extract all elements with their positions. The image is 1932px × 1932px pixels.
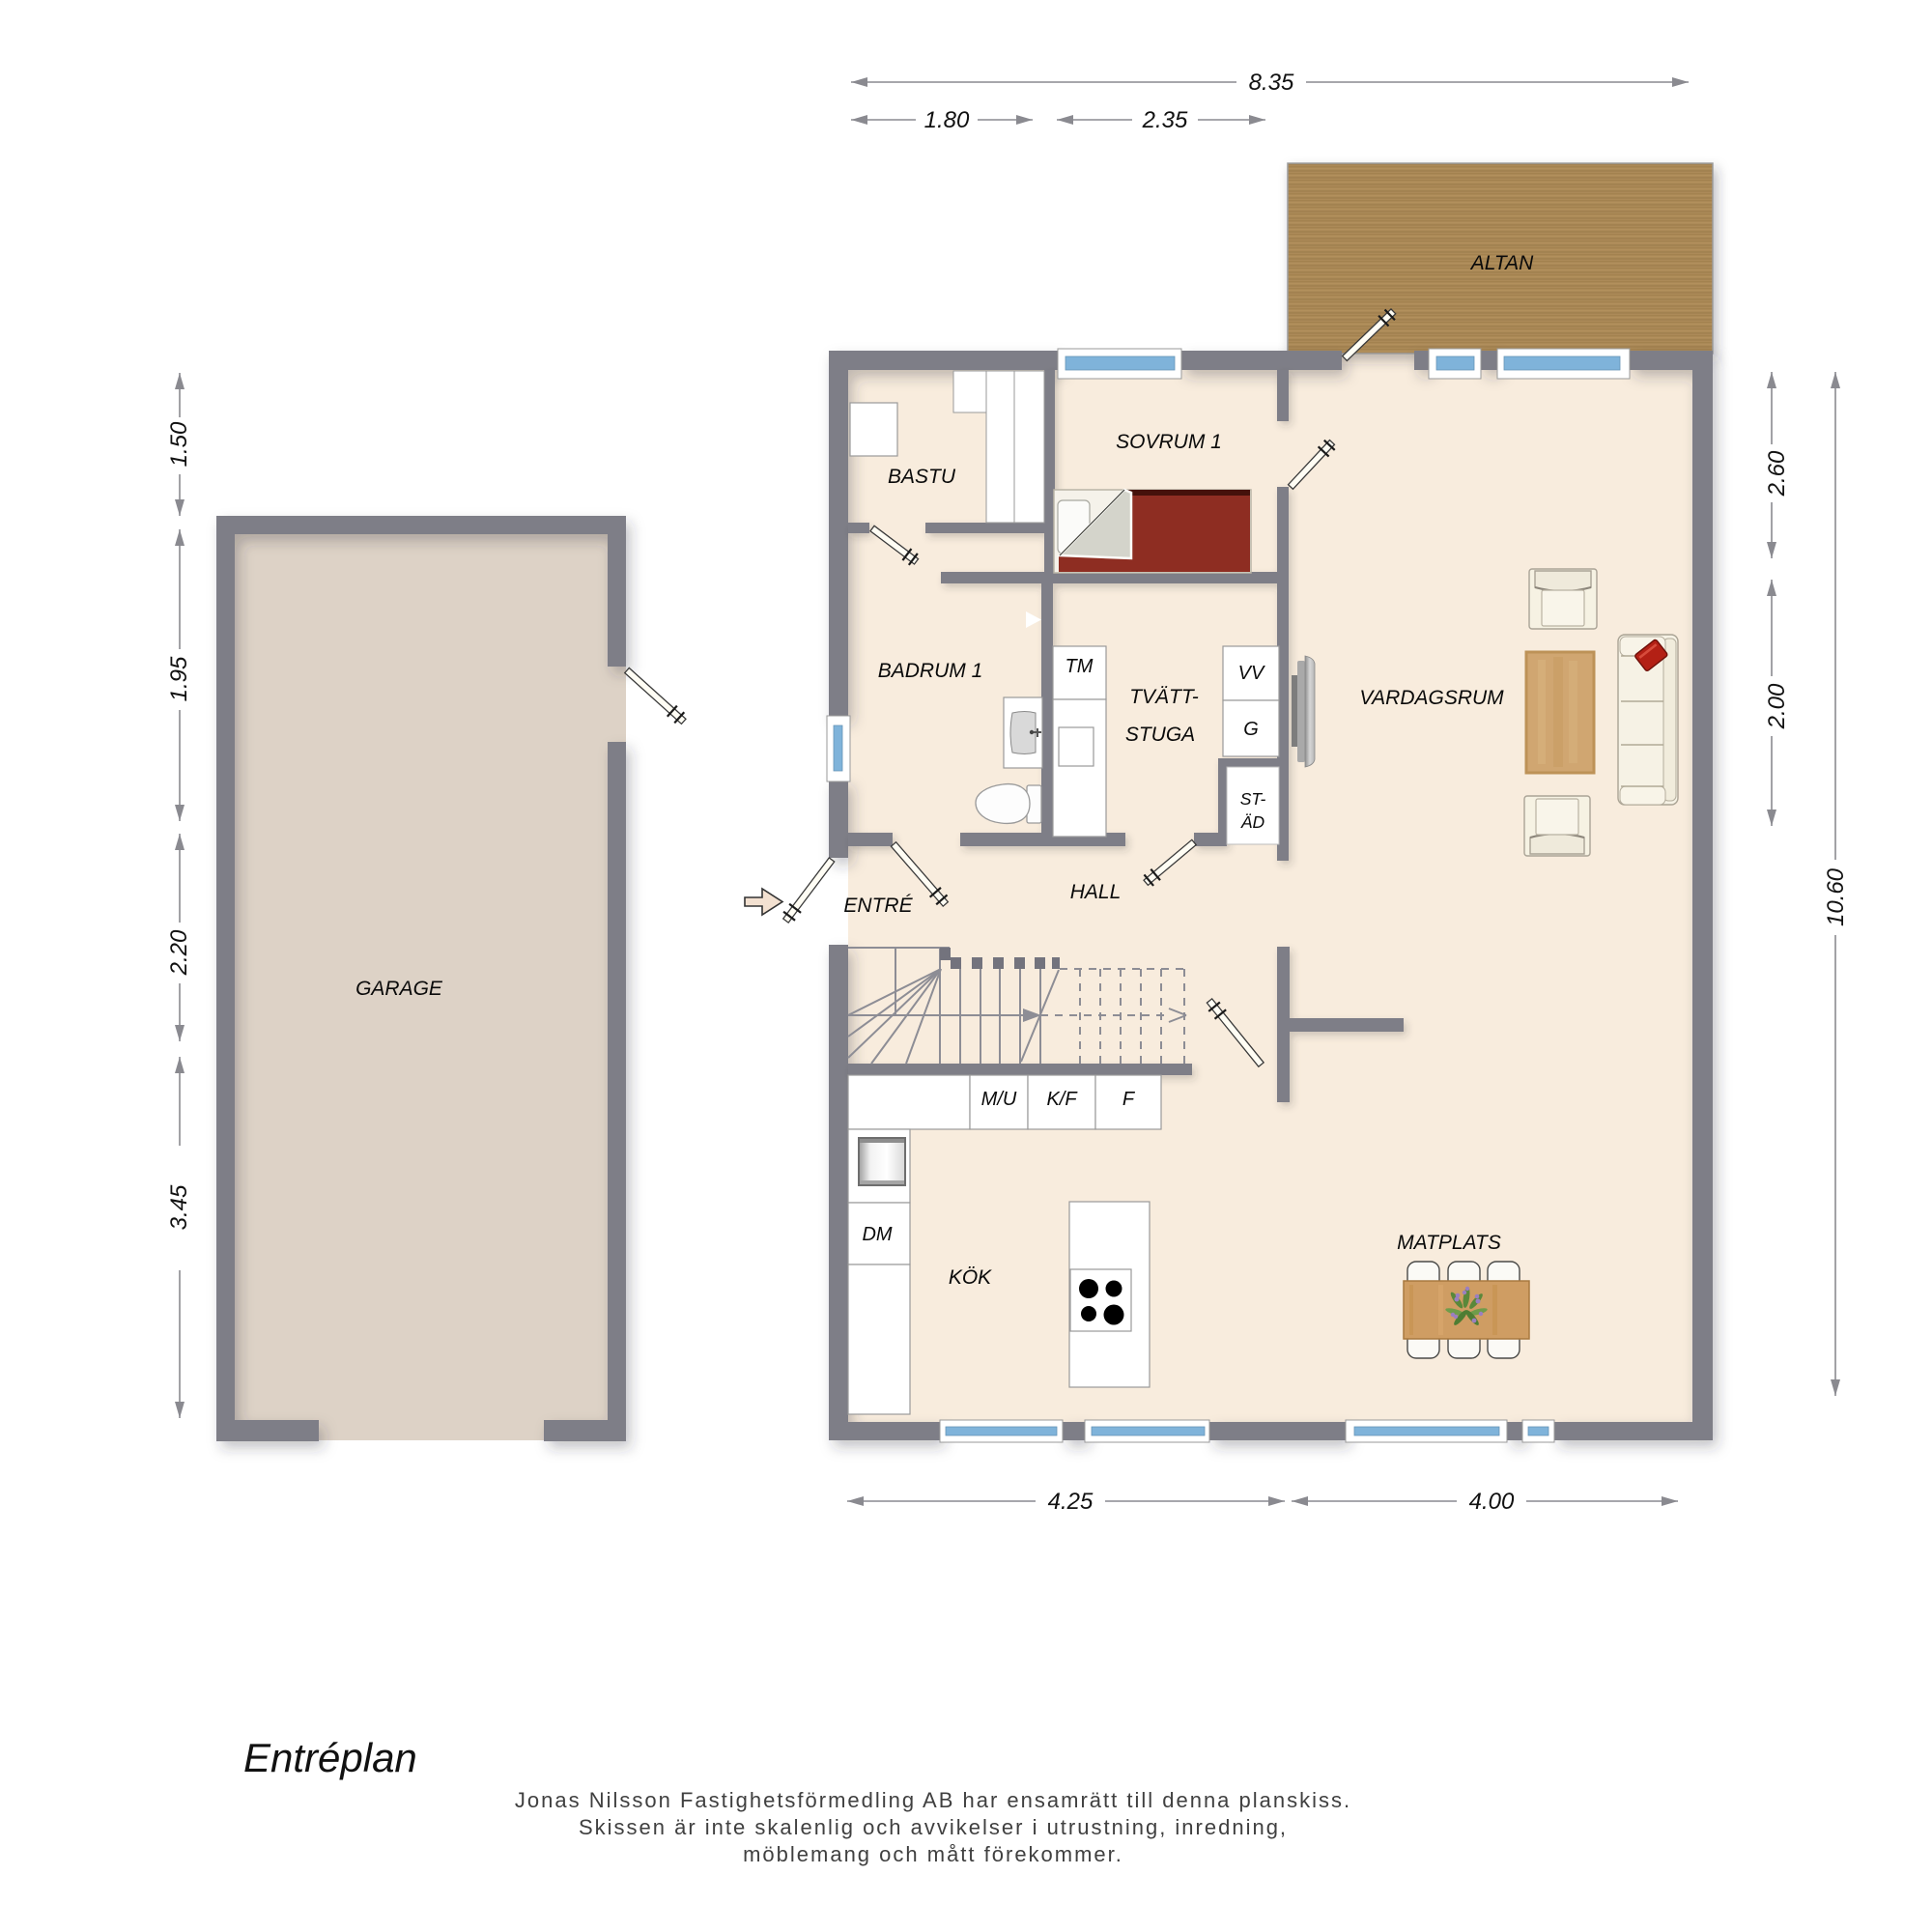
svg-text:2.20: 2.20 <box>166 929 192 976</box>
svg-text:2.35: 2.35 <box>1142 107 1188 133</box>
svg-text:Skissen är inte skalenlig och: Skissen är inte skalenlig och avvikelser… <box>579 1815 1288 1839</box>
svg-text:DM: DM <box>862 1224 892 1245</box>
svg-text:3.45: 3.45 <box>166 1184 192 1230</box>
svg-text:4.00: 4.00 <box>1469 1489 1515 1515</box>
svg-text:F: F <box>1122 1089 1136 1110</box>
svg-text:1.95: 1.95 <box>166 656 192 701</box>
svg-text:1.50: 1.50 <box>166 421 192 467</box>
svg-text:8.35: 8.35 <box>1249 70 1294 96</box>
svg-text:4.25: 4.25 <box>1048 1489 1094 1515</box>
svg-text:2.60: 2.60 <box>1764 450 1790 497</box>
svg-text:KÖK: KÖK <box>949 1266 992 1289</box>
svg-text:VARDAGSRUM: VARDAGSRUM <box>1359 687 1504 709</box>
svg-text:MATPLATS: MATPLATS <box>1397 1232 1501 1254</box>
svg-text:G: G <box>1243 719 1259 740</box>
svg-text:BADRUM 1: BADRUM 1 <box>878 660 983 682</box>
svg-text:Jonas Nilsson Fastighetsförmed: Jonas Nilsson Fastighetsförmedling AB ha… <box>515 1788 1351 1812</box>
svg-text:TM: TM <box>1065 656 1094 677</box>
svg-text:K/F: K/F <box>1046 1089 1078 1110</box>
svg-text:ÄD: ÄD <box>1240 812 1265 832</box>
svg-text:ST-: ST- <box>1240 789 1266 809</box>
svg-text:ALTAN: ALTAN <box>1469 252 1534 274</box>
svg-text:Entréplan: Entréplan <box>243 1735 417 1780</box>
svg-text:HALL: HALL <box>1070 881 1122 903</box>
svg-text:GARAGE: GARAGE <box>355 978 443 1000</box>
svg-text:STUGA: STUGA <box>1125 724 1195 746</box>
svg-text:1.80: 1.80 <box>924 107 970 133</box>
svg-text:TVÄTT-: TVÄTT- <box>1129 686 1199 708</box>
svg-text:VV: VV <box>1238 663 1265 684</box>
svg-text:M/U: M/U <box>981 1089 1017 1110</box>
svg-text:SOVRUM 1: SOVRUM 1 <box>1116 431 1222 453</box>
svg-text:10.60: 10.60 <box>1823 867 1849 926</box>
svg-text:BASTU: BASTU <box>888 466 956 488</box>
svg-text:möblemang och mått förekommer.: möblemang och mått förekommer. <box>743 1842 1123 1866</box>
svg-text:2.00: 2.00 <box>1764 683 1790 729</box>
svg-text:ENTRÉ: ENTRÉ <box>843 895 913 917</box>
